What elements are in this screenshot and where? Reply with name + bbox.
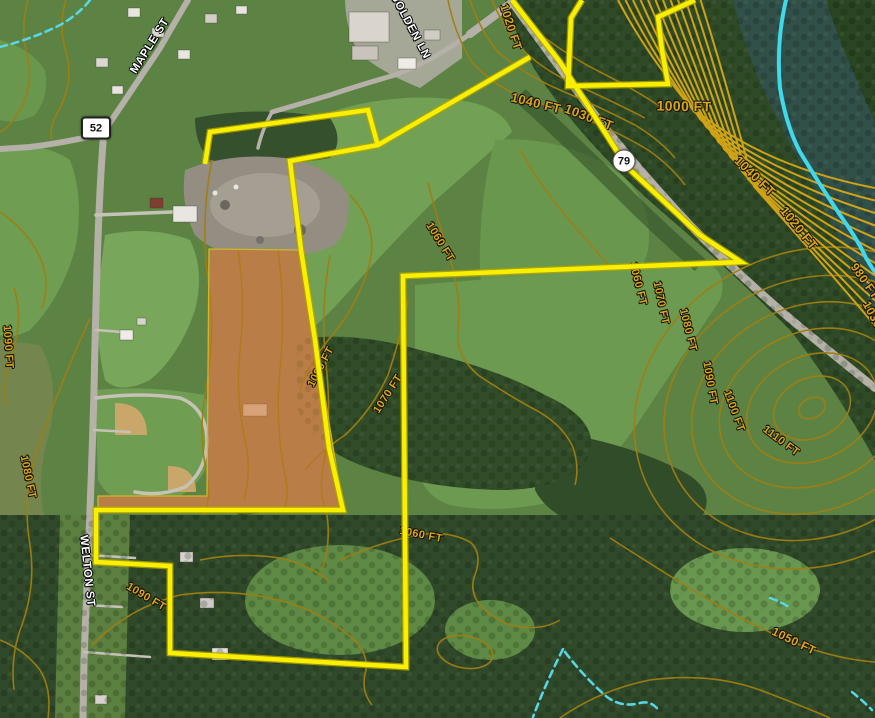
satellite-topo-map[interactable]: 1020 FT1040 FT1030 FT1000 FT1040 FT1020 … [0,0,875,718]
parcel-boundary-line [96,0,741,667]
parcel-boundary-layer [0,0,875,718]
